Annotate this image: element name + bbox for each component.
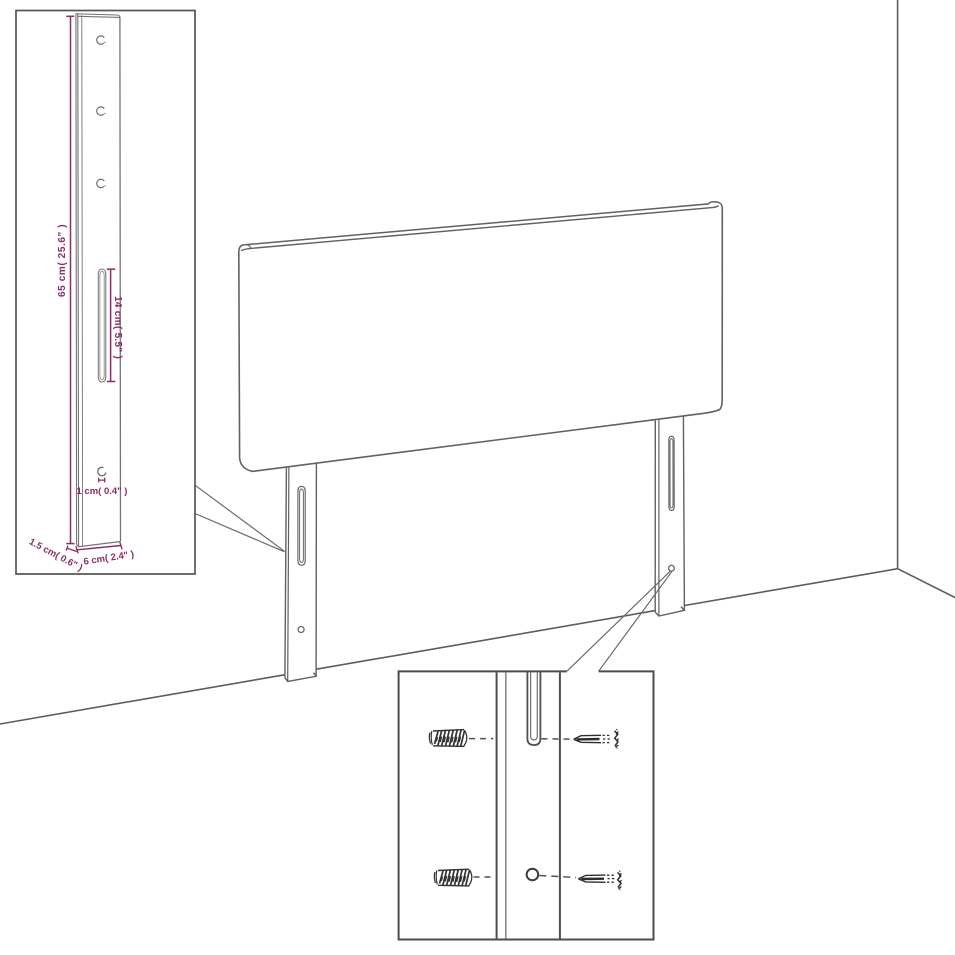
svg-text:65 cm( 25.6" ): 65 cm( 25.6" ) — [57, 224, 68, 297]
svg-text:1 cm( 0.4" ): 1 cm( 0.4" ) — [77, 486, 128, 497]
svg-text:14 cm( 5.5" ): 14 cm( 5.5" ) — [112, 296, 123, 359]
